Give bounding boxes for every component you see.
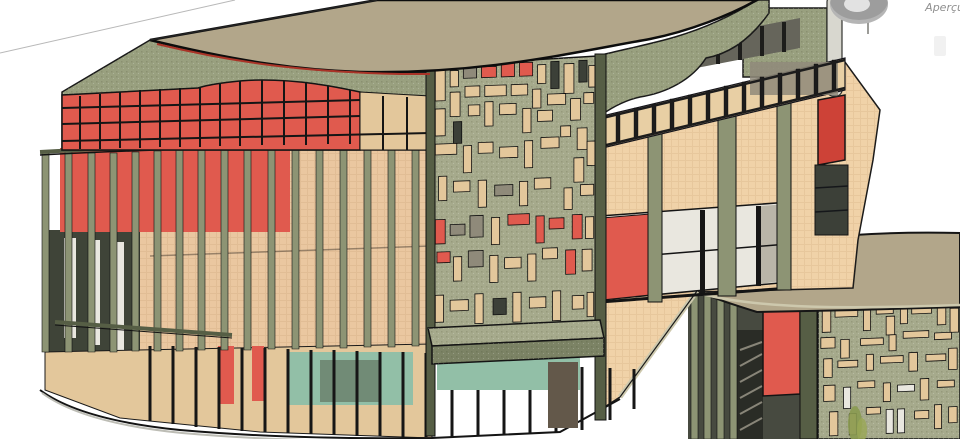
navigation-bar-ghost-icon <box>934 36 946 56</box>
entrance-door <box>548 362 578 428</box>
red-glass-panel-secondary <box>763 304 800 396</box>
panel-pilaster-right <box>595 54 606 420</box>
pilaster <box>718 96 736 296</box>
end-cap-glazing <box>815 165 848 235</box>
model-preview-scene <box>0 0 960 439</box>
red-door <box>252 346 264 401</box>
pilaster <box>648 118 662 302</box>
red-door-panel <box>818 95 845 165</box>
pilaster <box>777 82 791 290</box>
red-glass-panel-ribbon <box>602 214 650 300</box>
stair-silhouette <box>737 330 763 439</box>
panel-pilaster-left <box>426 64 435 436</box>
3d-view-canvas[interactable]: Aperçu <box>0 0 960 439</box>
clerestory-tan-panel <box>360 92 430 150</box>
